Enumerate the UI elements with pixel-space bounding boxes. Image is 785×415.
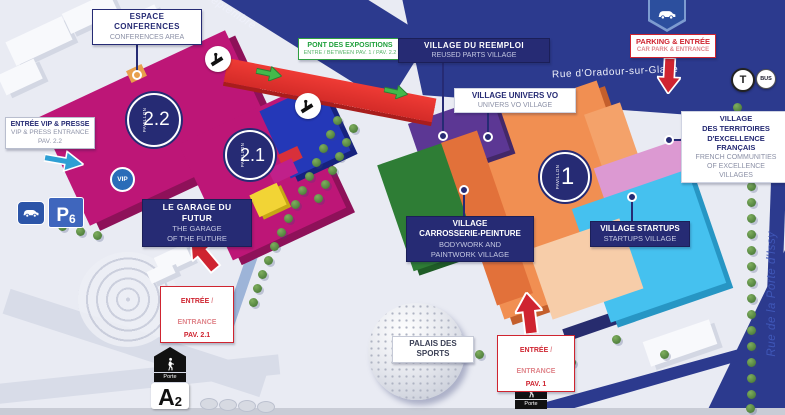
tree-icon xyxy=(747,198,756,207)
callout-subtitle: CAR PARK & ENTRANCE xyxy=(635,47,711,55)
pavilion-1-marker: PAVILLON 1 xyxy=(540,152,590,202)
tree-icon xyxy=(93,231,102,240)
tree-icon xyxy=(747,342,756,351)
callout-title: VILLAGE DU REEMPLOI xyxy=(403,41,545,51)
callout-palais-des-sports: PALAIS DES SPORTS xyxy=(392,336,474,363)
callout-title: VILLAGE STARTUPS xyxy=(595,224,685,234)
tree-icon xyxy=(291,200,300,209)
escalator-icon xyxy=(295,93,321,119)
tree-icon xyxy=(321,180,330,189)
tree-icon xyxy=(326,130,335,139)
pavilion-1-entrance-arrow xyxy=(513,290,546,335)
pavilion-word: PAVILLON xyxy=(555,165,560,190)
tree-icon xyxy=(249,298,258,307)
escalator-icon xyxy=(205,46,231,72)
callout-title: ENTRÉE VIP & PRESSE xyxy=(10,120,90,129)
callout-village-territoires: VILLAGE DES TERRITOIRES D'EXCELLENCE FRA… xyxy=(681,111,785,183)
callout-parking-entree: PARKING & ENTRÉE CAR PARK & ENTRANCE xyxy=(630,34,716,58)
callout-subtitle: FRENCH COMMUNITIES OF EXCELLENCE VILLAGE… xyxy=(686,153,785,180)
tree-icon xyxy=(335,152,344,161)
tree-icon xyxy=(747,262,756,271)
tree-icon xyxy=(342,138,351,147)
tree-icon xyxy=(305,172,314,181)
pavilion-2-2-marker: PAVILLON 2.2 xyxy=(127,93,181,147)
callout-title: LE GARAGE DU FUTUR xyxy=(147,202,247,224)
callout-title: ENTRÉE / ENTRANCE xyxy=(178,298,217,326)
tree-icon xyxy=(349,124,358,133)
pavilion-2-1-marker: PAVILLON 2.1 xyxy=(225,130,275,180)
callout-title: ENTRÉE / ENTRANCE xyxy=(517,347,556,375)
tree-icon xyxy=(258,270,267,279)
callout-village-reemploi: VILLAGE DU REEMPLOI REUSED PARTS VILLAGE xyxy=(398,38,550,63)
callout-pavilion: PAV. 2.2 xyxy=(10,138,90,146)
tree-icon xyxy=(253,284,262,293)
callout-title: PARKING & ENTRÉE xyxy=(635,37,711,47)
callout-pavilion: PAV. 2.1 xyxy=(165,331,229,340)
bottom-road-band xyxy=(0,408,785,415)
callout-title: VILLAGE DES TERRITOIRES D'EXCELLENCE FRA… xyxy=(686,114,785,153)
tree-icon xyxy=(747,326,756,335)
bus-icon: BUS xyxy=(756,69,776,89)
vip-badge: VIP xyxy=(110,167,135,192)
callout-title: VILLAGE UNIVERS VO xyxy=(459,91,571,101)
callout-village-carrosserie: VILLAGE CARROSSERIE-PEINTURE BODYWORK AN… xyxy=(406,216,534,262)
tram-icon: T xyxy=(731,68,755,92)
callout-subtitle: UNIVERS VO VILLAGE xyxy=(459,101,571,110)
callout-subtitle: CONFERENCES AREA xyxy=(97,33,197,42)
street-porte-issy-label: Rue de la Porte d'Issy xyxy=(766,214,778,374)
callout-title: VILLAGE CARROSSERIE-PEINTURE xyxy=(411,219,529,240)
tree-icon xyxy=(76,227,85,236)
pavilion-word: PAVILLON xyxy=(240,143,245,168)
callout-subtitle: THE GARAGE OF THE FUTURE xyxy=(147,224,247,244)
parking-entrance-arrow xyxy=(656,57,682,94)
tree-icon xyxy=(612,335,621,344)
tree-icon xyxy=(270,242,279,251)
tree-icon xyxy=(298,186,307,195)
tree-icon xyxy=(747,230,756,239)
callout-title: PALAIS DES SPORTS xyxy=(397,339,469,360)
callout-subtitle: STARTUPS VILLAGE xyxy=(595,234,685,244)
p6-number: 6 xyxy=(69,213,76,225)
tree-icon xyxy=(747,246,756,255)
callout-title: PONT DES EXPOSITIONS xyxy=(303,41,397,50)
callout-subtitle: ENTRE / BETWEEN PAV. 1 / PAV. 2.2 xyxy=(303,50,397,57)
callout-subtitle: BODYWORK AND PAINTWORK VILLAGE xyxy=(411,240,529,260)
tree-icon xyxy=(284,214,293,223)
tree-icon xyxy=(747,374,756,383)
venue-map: PAVILLON 2.2 PAVILLON 2.1 PAVILLON 1 VIP… xyxy=(0,0,785,415)
callout-subtitle: VIP & PRESS ENTRANCE xyxy=(10,129,90,137)
tree-icon xyxy=(747,310,756,319)
pavilion-word: PAVILLON xyxy=(142,108,147,133)
car-icon xyxy=(657,9,677,20)
tree-icon xyxy=(319,144,328,153)
callout-entree-vip-presse: ENTRÉE VIP & PRESSE VIP & PRESS ENTRANCE… xyxy=(5,117,95,149)
pavilion-number: 1 xyxy=(561,163,574,191)
parking-p6-badge: P 6 xyxy=(17,197,84,228)
gate-a2-badge: A 2 xyxy=(151,383,189,409)
gate-a2-porte-label: Porte xyxy=(154,373,186,382)
tree-icon xyxy=(264,256,273,265)
pavilion-number: 2.2 xyxy=(143,109,169,131)
tree-icon xyxy=(747,214,756,223)
tree-icon xyxy=(277,228,286,237)
tree-icon xyxy=(312,158,321,167)
tree-icon xyxy=(747,182,756,191)
tree-icon xyxy=(328,166,337,175)
callout-espace-conferences: ESPACE CONFERENCES CONFERENCES AREA xyxy=(92,9,202,45)
callout-village-univers-vo: VILLAGE UNIVERS VO UNIVERS VO VILLAGE xyxy=(454,88,576,113)
callout-pont-expositions: PONT DES EXPOSITIONS ENTRE / BETWEEN PAV… xyxy=(298,38,402,60)
tree-icon xyxy=(314,194,323,203)
tree-icon xyxy=(333,116,342,125)
tree-icon xyxy=(746,404,755,413)
tree-icon xyxy=(747,390,756,399)
p6-letter: P xyxy=(56,206,69,225)
tree-icon xyxy=(747,294,756,303)
callout-subtitle: REUSED PARTS VILLAGE xyxy=(403,51,545,60)
building-block xyxy=(0,59,43,96)
callout-pavilion: PAV. 1 xyxy=(502,380,570,389)
gate-number: 2 xyxy=(175,394,182,409)
tree-icon xyxy=(747,358,756,367)
gate-porte-label: Porte xyxy=(515,400,547,409)
callout-garage-futur: LE GARAGE DU FUTUR THE GARAGE OF THE FUT… xyxy=(142,199,252,247)
gate-letter: A xyxy=(158,387,175,409)
callout-entree-pav-1: ENTRÉE / ENTRANCE PAV. 1 xyxy=(497,335,575,392)
car-icon xyxy=(17,201,45,225)
tree-icon xyxy=(475,350,484,359)
tree-icon xyxy=(747,278,756,287)
callout-entree-pav-2-1: ENTRÉE / ENTRANCE PAV. 2.1 xyxy=(160,286,234,343)
tree-icon xyxy=(660,350,669,359)
building-block xyxy=(5,16,72,66)
callout-village-startups: VILLAGE STARTUPS STARTUPS VILLAGE xyxy=(590,221,690,247)
callout-title: ESPACE CONFERENCES xyxy=(97,12,197,33)
